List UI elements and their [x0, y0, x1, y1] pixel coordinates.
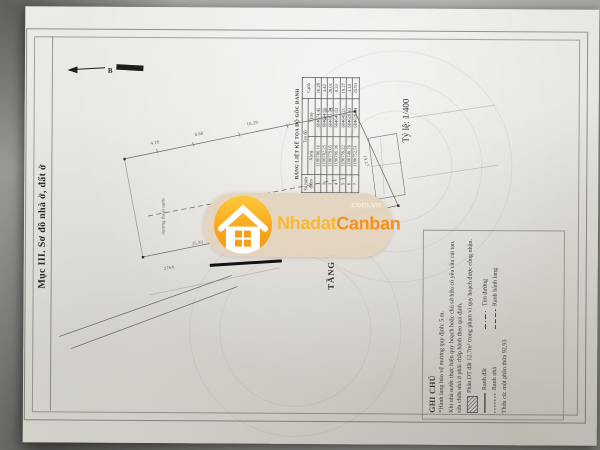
- scale-label: Tỷ lệ: 1/400: [399, 91, 411, 151]
- photo-of-document: { "page": { "section_title": "Mục III. S…: [0, 0, 600, 450]
- dotted-line-icon: [493, 393, 497, 413]
- notes-line2: Khi nhà nước thực hiện quy hoạch hoặc ch…: [449, 237, 466, 413]
- brand-domain: .com.vn: [349, 199, 381, 209]
- canal-label: mương thoát nước: [160, 189, 165, 235]
- notes-line1: *Hành lang bảo vệ mương quy định: 5 m.: [439, 237, 448, 413]
- watermark-badge: NhadatCanban .com.vn: [203, 192, 393, 257]
- notes-title: GHI CHÚ: [428, 237, 438, 413]
- house-logo-icon: [214, 195, 272, 253]
- old-parcel-note: Thửa cũ: một phần thửa 92,93: [502, 237, 511, 413]
- solid-line-icon: [483, 393, 487, 413]
- legend-item-ranh-hanh-lang: Ranh hành lang: [490, 237, 501, 329]
- brand-part2: Canban: [336, 213, 400, 233]
- table-row: 71190752.51604626.8425.93: [352, 78, 359, 193]
- legend-label: Ranh nhà: [492, 367, 498, 390]
- legend: Ranh đất Tim đường Ranh nhà Ranh hành la…: [480, 237, 501, 413]
- brand-text: NhadatCanban: [277, 213, 401, 235]
- coordinate-table-title: BẢNG LIỆT KÊ TỌA ĐỘ GÓC RANH: [295, 75, 301, 193]
- north-letter: B: [108, 67, 113, 75]
- brand-part1: Nhadat: [277, 213, 336, 233]
- dash-dot-line-icon: [483, 309, 487, 329]
- col-point: Số hiệu điểm: [302, 175, 315, 193]
- dashed-line-icon: [493, 309, 497, 329]
- legend-label: Ranh hành lang: [492, 268, 498, 306]
- legend-item-ranh-dat: Ranh đất: [480, 329, 491, 413]
- legend-label: Ranh đất: [482, 368, 488, 390]
- frontage-line: [210, 260, 282, 265]
- north-arrow-icon: [69, 64, 143, 73]
- coordinate-table: BẢNG LIỆT KÊ TỌA ĐỘ GÓC RANH Số hiệu điể…: [295, 75, 388, 194]
- legend-label: Tim đường: [482, 279, 488, 306]
- hatch-swatch: [467, 396, 478, 413]
- notes-hatch-note: Phần DT đất 12.7m² trong phạm vi quy hoạ…: [467, 239, 476, 393]
- scanned-document-page: Mục III. Sơ đồ nhà ở, đất ở B: [23, 6, 600, 445]
- legend-item-ranh-nha: Ranh nhà: [490, 329, 501, 413]
- col-edge: Cạnh: [302, 77, 315, 98]
- notes-block: GHI CHÚ *Hành lang bảo vệ mương quy định…: [422, 230, 565, 421]
- floor-text: TẦNG 1: [326, 253, 336, 290]
- scale-text: Tỷ lệ: 1/400: [401, 99, 411, 143]
- legend-item-tim-duong: Tim đường: [480, 237, 491, 329]
